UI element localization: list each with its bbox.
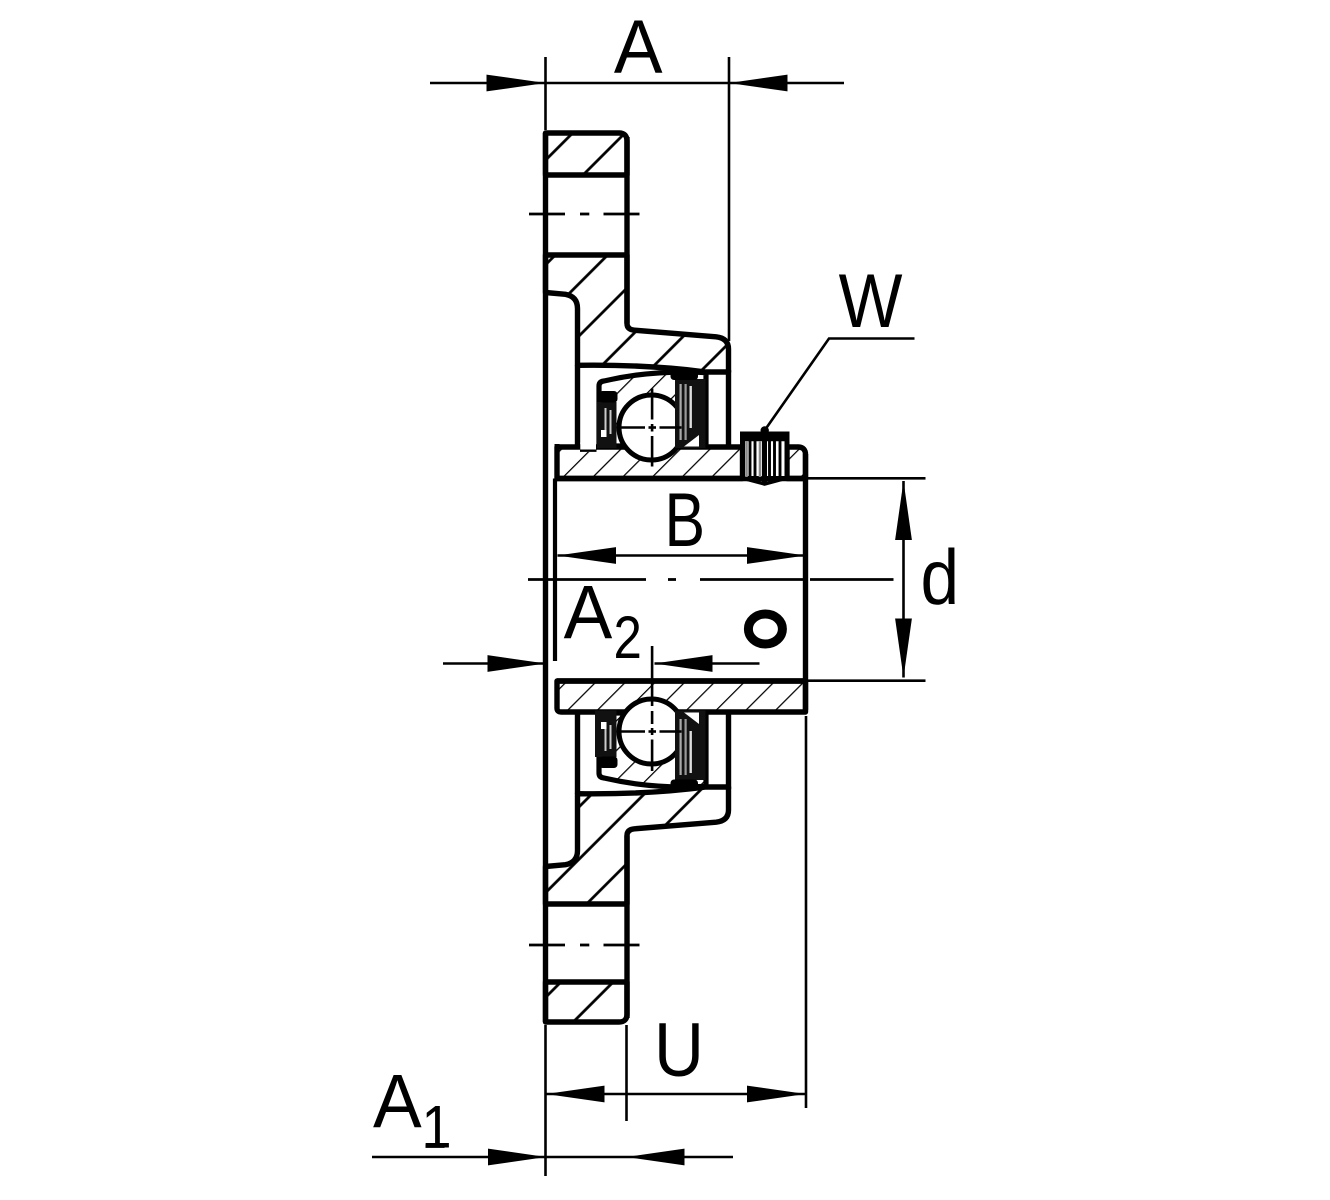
svg-text:B: B: [665, 478, 706, 563]
svg-text:d: d: [921, 533, 960, 621]
svg-text:1: 1: [421, 1094, 451, 1161]
svg-text:W: W: [839, 259, 903, 344]
svg-text:A: A: [614, 5, 663, 90]
svg-text:U: U: [654, 1008, 704, 1093]
svg-text:2: 2: [614, 604, 642, 671]
svg-text:A: A: [373, 1059, 422, 1144]
svg-text:A: A: [564, 570, 613, 655]
